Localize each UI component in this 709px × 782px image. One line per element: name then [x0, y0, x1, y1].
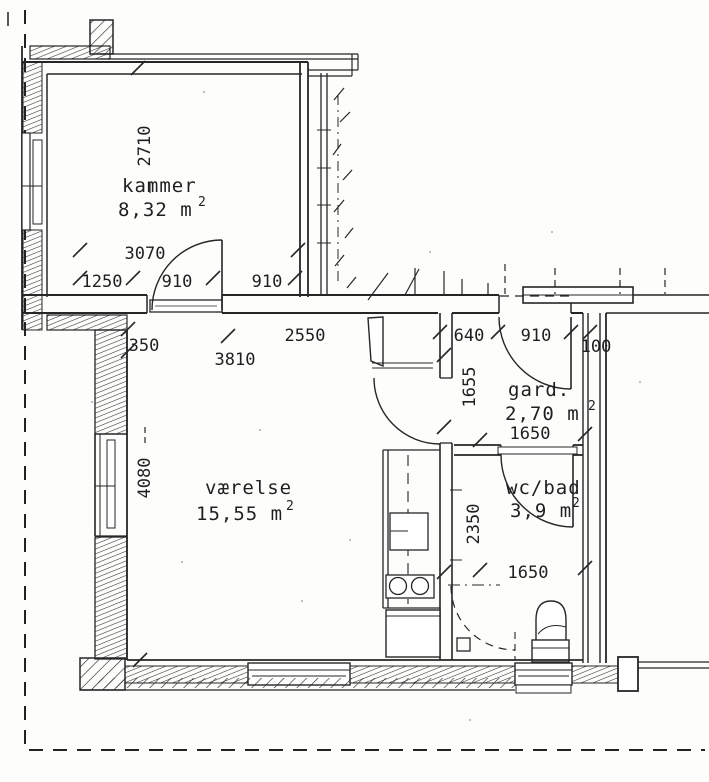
kammer-area: 8,32 m	[118, 199, 193, 221]
shower-zone	[451, 586, 515, 650]
west-wall	[47, 315, 127, 660]
room-labels: kammer 8,32 m 2 værelse 15,55 m 2 gard. …	[118, 175, 596, 525]
kitchen-unit	[383, 450, 440, 657]
dim-span-2550: 2550	[285, 326, 326, 346]
wc-bad-area: 3,9 m	[510, 500, 572, 522]
vaerelse-area-exp: 2	[286, 499, 294, 514]
south-wall	[80, 657, 709, 693]
floor-plan: kammer 8,32 m 2 værelse 15,55 m 2 gard. …	[0, 0, 709, 782]
wall-end-pier	[618, 657, 638, 691]
dim-kammer-door: 910	[162, 272, 193, 292]
dim-wall-100: 100	[581, 337, 612, 357]
kammer-window-west	[22, 133, 42, 230]
dim-hall-1655: 1655	[460, 367, 480, 408]
terrace-hatch-marks	[333, 88, 356, 288]
wc-bad-area-exp: 2	[572, 496, 580, 511]
dim-kammer-depth: 2710	[135, 126, 155, 167]
vaerelse-area: 15,55 m	[196, 503, 283, 525]
vaerelse-label: værelse	[205, 477, 292, 499]
dim-kammer-left: 1250	[82, 272, 123, 292]
dim-bath-depth: 2350	[464, 504, 484, 545]
main-cross-wall	[22, 287, 709, 313]
dim-gard-width: 1650	[510, 424, 551, 444]
kitchen-base-unit	[386, 610, 440, 657]
dim-bath-width: 1650	[508, 563, 549, 583]
wc-bad-label: wc/bad	[506, 477, 581, 499]
floor-drain	[457, 638, 470, 651]
dim-vaerelse-depth: 4080	[135, 458, 155, 499]
dim-entry-left: 640	[454, 326, 485, 346]
dim-entry-door: 910	[521, 326, 552, 346]
garderobe-area: 2,70 m	[505, 403, 580, 425]
dim-vaerelse-width: 3810	[215, 350, 256, 370]
dim-kammer-width: 3070	[125, 244, 166, 264]
vaerelse-window-west	[95, 434, 127, 536]
terrace-area	[308, 54, 358, 296]
wardrobe	[368, 317, 383, 366]
vaerelse-door	[374, 378, 440, 444]
toilet	[532, 601, 569, 662]
bath-window-south	[515, 663, 572, 693]
floor-plan-drawing: kammer 8,32 m 2 værelse 15,55 m 2 gard. …	[0, 0, 709, 782]
dim-offset-350: 350	[129, 336, 160, 356]
kammer-label: kammer	[122, 175, 197, 197]
dim-kammer-right: 910	[252, 272, 283, 292]
bathroom-fixtures	[448, 585, 569, 662]
garderobe-label: gard.	[508, 379, 570, 401]
entrance-lintel	[523, 287, 633, 303]
kammer-area-exp: 2	[198, 195, 206, 210]
east-wall	[583, 313, 606, 663]
garderobe-area-exp: 2	[588, 399, 596, 414]
kammer-door-sill	[150, 300, 222, 312]
